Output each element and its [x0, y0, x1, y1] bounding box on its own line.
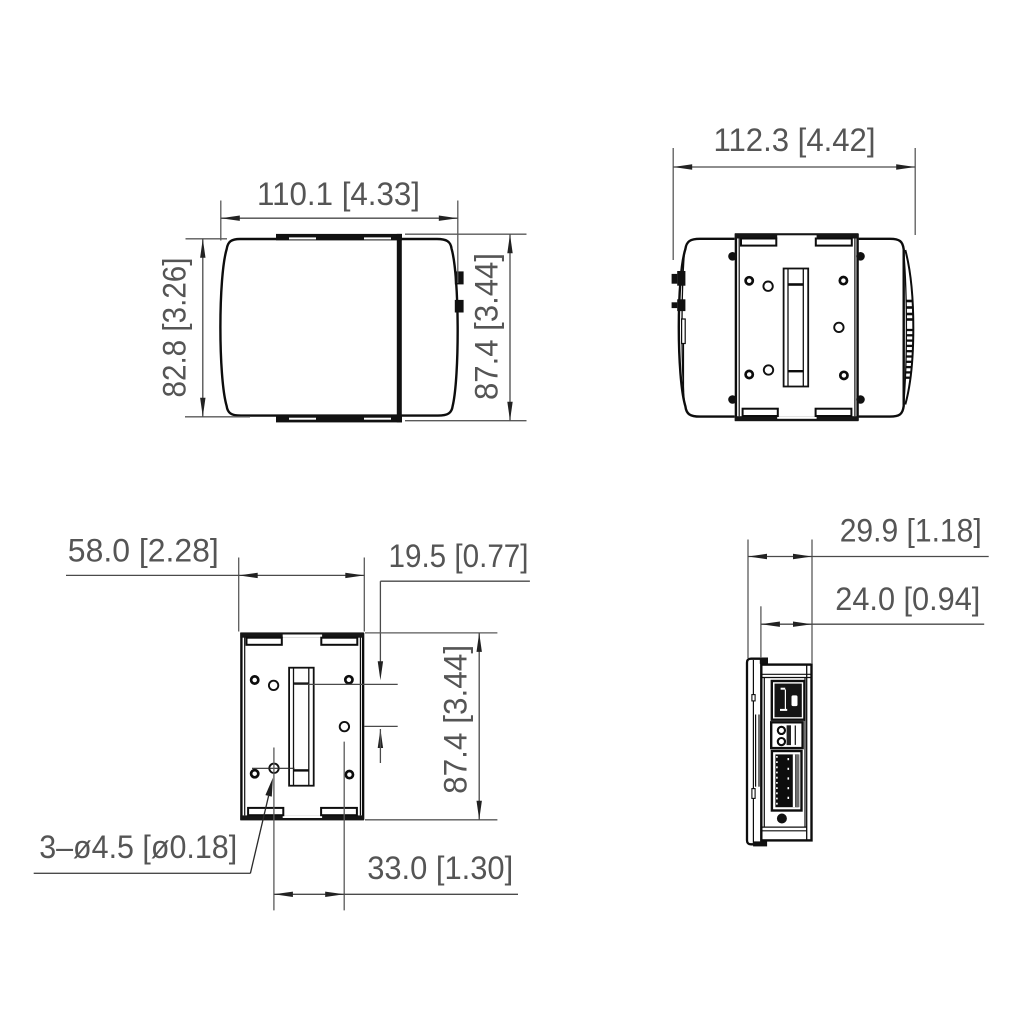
svg-text:29.9 [1.18]: 29.9 [1.18]: [840, 513, 982, 549]
svg-text:112.3 [4.42]: 112.3 [4.42]: [714, 122, 876, 158]
svg-text:19.5 [0.77]: 19.5 [0.77]: [389, 538, 529, 574]
svg-text:24.0 [0.94]: 24.0 [0.94]: [835, 581, 980, 617]
svg-text:33.0 [1.30]: 33.0 [1.30]: [367, 850, 513, 886]
svg-text:87.4 [3.44]: 87.4 [3.44]: [468, 253, 504, 400]
svg-text:3–ø4.5 [ø0.18]: 3–ø4.5 [ø0.18]: [39, 829, 237, 865]
svg-text:110.1 [4.33]: 110.1 [4.33]: [257, 176, 420, 212]
svg-text:87.4 [3.44]: 87.4 [3.44]: [438, 645, 474, 794]
svg-text:58.0 [2.28]: 58.0 [2.28]: [68, 533, 219, 569]
svg-text:82.8 [3.26]: 82.8 [3.26]: [157, 258, 193, 398]
